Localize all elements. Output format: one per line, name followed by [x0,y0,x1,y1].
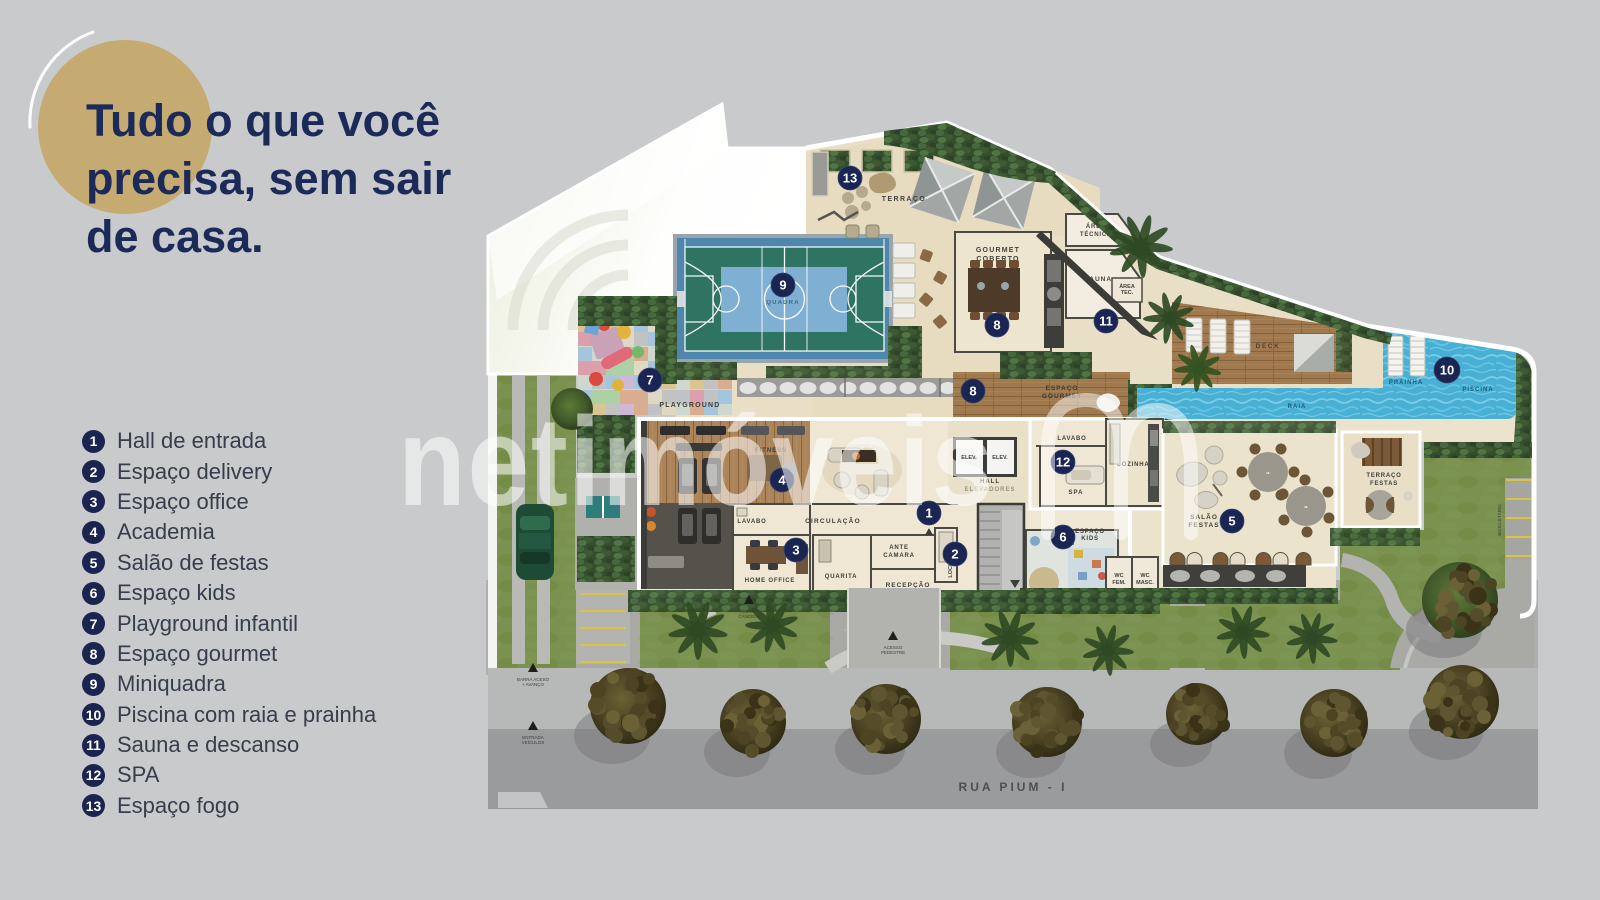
svg-text:+ AVANÇO: + AVANÇO [522,682,544,687]
svg-text:WC: WC [1114,573,1123,579]
svg-text:5: 5 [1228,514,1235,529]
svg-text:❧: ❧ [1265,471,1270,477]
svg-text:12: 12 [1056,455,1070,470]
svg-text:LAVABO: LAVABO [1057,436,1086,442]
svg-text:11: 11 [1099,314,1113,329]
svg-text:FEM.: FEM. [1112,580,1126,586]
svg-text:RAIA: RAIA [1288,404,1307,410]
svg-text:TERRAÇO: TERRAÇO [1366,473,1401,479]
svg-text:ESPAÇO: ESPAÇO [1075,529,1105,535]
svg-text:TERRAÇO: TERRAÇO [882,196,926,203]
svg-text:13: 13 [843,171,857,186]
svg-text:netimóveis: netimóveis [398,392,995,532]
svg-text:HOME OFFICE: HOME OFFICE [745,578,795,584]
svg-text:MASC.: MASC. [1136,580,1154,586]
svg-text:TEC.: TEC. [1121,290,1134,296]
svg-text:8: 8 [993,318,1000,333]
svg-text:ESPAÇO: ESPAÇO [1046,385,1079,392]
svg-text:ÁREA: ÁREA [1119,283,1135,290]
svg-text:CANCELA: CANCELA [738,614,759,619]
svg-text:FESTAS: FESTAS [1370,481,1398,487]
svg-text:9: 9 [779,278,786,293]
svg-text:CAMARA: CAMARA [883,553,914,559]
svg-text:2: 2 [951,547,958,562]
svg-text:QUADRA: QUADRA [766,300,800,306]
svg-text:PRAINHA: PRAINHA [1389,380,1423,386]
svg-text:KIDS: KIDS [1081,536,1099,542]
svg-text:10: 10 [1440,363,1454,378]
svg-text:WC: WC [1140,573,1149,579]
svg-text:7: 7 [646,373,653,388]
svg-text:6: 6 [1059,530,1066,545]
svg-text:GOURMET: GOURMET [976,247,1020,254]
svg-text:3: 3 [792,543,799,558]
svg-text:RUA PIUM - I: RUA PIUM - I [959,780,1068,794]
svg-text:QUARITA: QUARITA [825,574,858,580]
svg-text:RECEPÇÃO: RECEPÇÃO [886,580,931,589]
svg-text:PISCINA: PISCINA [1462,387,1493,393]
svg-text:ANTE: ANTE [889,545,909,551]
svg-text:DECK: DECK [1256,343,1281,350]
svg-text:PEDESTRE: PEDESTRE [881,650,905,655]
svg-text:SPA: SPA [1069,490,1084,496]
svg-text:BICICLETÁRIO: BICICLETÁRIO [1496,504,1502,536]
svg-text:❧: ❧ [1303,505,1308,511]
svg-text:VEÍCULOS: VEÍCULOS [522,739,545,745]
